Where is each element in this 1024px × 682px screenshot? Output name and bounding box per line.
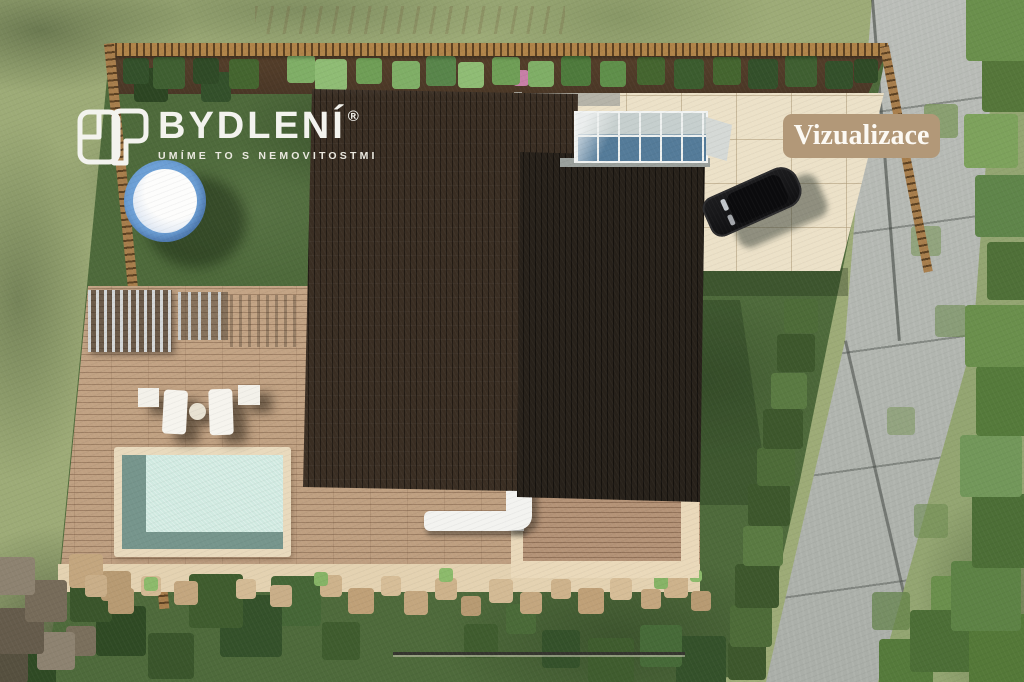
aerial-visualization: BYDLENÍ ® UMÍME TO S NEMOVITOSTMI Vizual… xyxy=(0,0,1024,682)
tilled-rows xyxy=(255,6,565,34)
bydleni-logo: BYDLENÍ ® UMÍME TO S NEMOVITOSTMI xyxy=(76,106,378,166)
atrium-frame-bar xyxy=(576,135,706,137)
logo-text-block: BYDLENÍ ® UMÍME TO S NEMOVITOSTMI xyxy=(158,106,378,162)
house-roof-secondary xyxy=(517,147,709,505)
hot-tub xyxy=(124,160,206,242)
pergola-shadow xyxy=(230,295,296,347)
sun-lounger-right xyxy=(208,389,234,436)
registered-trademark-symbol: ® xyxy=(348,108,359,125)
flower-bed xyxy=(110,54,886,94)
patio-deck xyxy=(523,497,681,561)
logo-brand-text: BYDLENÍ xyxy=(158,106,346,146)
pergola-seating xyxy=(178,292,228,340)
deck-pouf-left xyxy=(138,388,159,407)
sun-lounger-left xyxy=(162,389,188,434)
round-side-table xyxy=(189,403,206,420)
deck-pouf-right xyxy=(238,385,260,405)
agave-plants xyxy=(0,0,2,2)
glass-atrium xyxy=(574,111,708,163)
logo-tagline: UMÍME TO S NEMOVITOSTMI xyxy=(158,150,378,162)
swimming-pool xyxy=(122,455,283,549)
fence-top xyxy=(110,43,888,56)
bydleni-logo-icon xyxy=(76,106,150,166)
hot-tub-cover xyxy=(133,169,197,233)
visualization-badge: Vizualizace xyxy=(783,114,940,158)
pergola xyxy=(88,290,172,352)
garden-edging-line xyxy=(393,652,685,655)
pool-deep-edge-bottom xyxy=(122,532,283,549)
